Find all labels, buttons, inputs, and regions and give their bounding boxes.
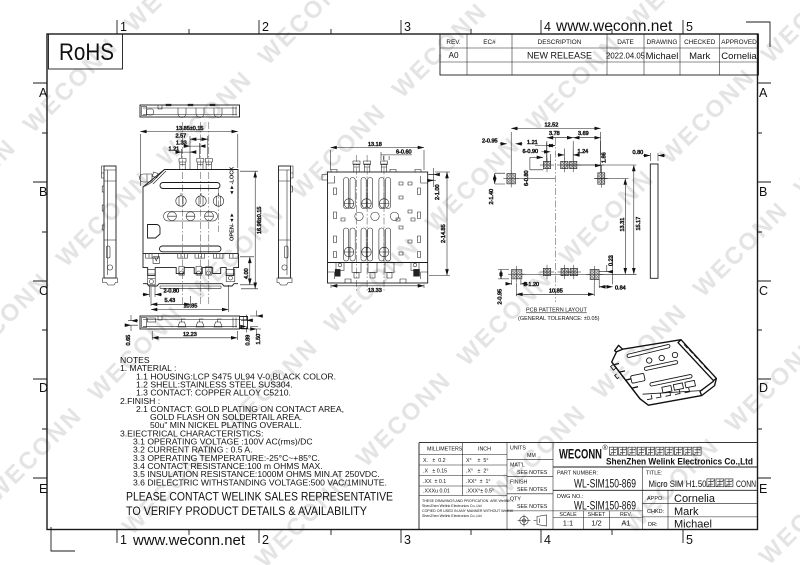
svg-text:A0: A0 xyxy=(448,51,458,60)
svg-text:NEW RELEASE: NEW RELEASE xyxy=(527,51,592,61)
svg-text:2-0.95: 2-0.95 xyxy=(482,139,498,145)
svg-text:WL-SIM150-869: WL-SIM150-869 xyxy=(574,499,636,513)
svg-text:REV.: REV. xyxy=(446,39,461,46)
svg-text:B: B xyxy=(759,185,767,199)
svg-text:2-1.20: 2-1.20 xyxy=(524,282,540,288)
svg-text:MILLIMETERS: MILLIMETERS xyxy=(427,447,463,453)
svg-text:DESCRIPTION: DESCRIPTION xyxy=(538,39,582,46)
svg-text:12.52: 12.52 xyxy=(545,123,559,129)
svg-text:15.17: 15.17 xyxy=(636,217,642,231)
svg-text:.XXX°± 0.5°: .XXX°± 0.5° xyxy=(466,489,494,495)
svg-text:13.31: 13.31 xyxy=(620,218,626,232)
svg-text:5: 5 xyxy=(686,20,693,34)
svg-text:0.23: 0.23 xyxy=(609,255,615,266)
svg-text:2: 2 xyxy=(262,20,269,34)
svg-text:DATE: DATE xyxy=(617,39,634,46)
svg-text:Mark: Mark xyxy=(674,506,699,518)
svg-text:Micro SIM H1.50: Micro SIM H1.50 xyxy=(649,479,707,489)
svg-text:DRAWING: DRAWING xyxy=(647,39,678,46)
svg-text:.XXXu 0.01: .XXXu 0.01 xyxy=(423,489,450,495)
svg-text:PCB PATTERN LAYOUT: PCB PATTERN LAYOUT xyxy=(526,308,587,314)
svg-text:COPIED OR USED IN ANY MANNER W: COPIED OR USED IN ANY MANNER WITHOUT Wel… xyxy=(422,509,514,513)
svg-text:2-1.00: 2-1.00 xyxy=(435,184,441,200)
svg-text:PLEASE CONTACT WELINK SALES RE: PLEASE CONTACT WELINK SALES REPRESENTATI… xyxy=(126,492,393,504)
svg-text:EC#: EC# xyxy=(483,39,496,46)
svg-text:DR:: DR: xyxy=(648,522,658,528)
svg-text:10.85: 10.85 xyxy=(549,289,563,295)
svg-text:1.33: 1.33 xyxy=(176,141,187,147)
svg-text:6-0.60: 6-0.60 xyxy=(396,150,412,156)
svg-text:.X ± 0.15: .X ± 0.15 xyxy=(423,468,447,474)
svg-text:16.96±0.15: 16.96±0.15 xyxy=(257,207,263,235)
svg-text:D: D xyxy=(759,381,768,395)
svg-text:REV.: REV. xyxy=(620,512,632,518)
svg-text:SEE NOTES: SEE NOTES xyxy=(517,470,548,476)
svg-text:FINISH: FINISH xyxy=(510,480,528,486)
svg-text:1:1: 1:1 xyxy=(563,519,573,528)
svg-text:.X° ± 2°: .X° ± 2° xyxy=(466,468,488,474)
svg-text:www.weconn.net: www.weconn.net xyxy=(555,18,673,35)
svg-text:ShenZhen Welink Electronics Co: ShenZhen Welink Electronics Co.,Ltd xyxy=(422,514,481,518)
svg-text:1.50: 1.50 xyxy=(256,334,262,345)
svg-text:2-14.85: 2-14.85 xyxy=(441,224,447,243)
svg-text:3.6 DIELECTRIC WITHSTANDING VO: 3.6 DIELECTRIC WITHSTANDING VOLTAGE:500 … xyxy=(133,477,387,487)
svg-text:2-1.40: 2-1.40 xyxy=(489,189,495,205)
svg-text:13.18: 13.18 xyxy=(368,142,382,148)
svg-text:®: ® xyxy=(603,444,609,452)
svg-text:B: B xyxy=(39,185,47,199)
svg-text:SEE NOTES: SEE NOTES xyxy=(517,487,548,493)
svg-text:0.80: 0.80 xyxy=(633,150,644,156)
svg-text:1.24: 1.24 xyxy=(578,149,589,155)
svg-text:QTY: QTY xyxy=(510,497,521,503)
svg-text:CONN: CONN xyxy=(736,479,756,489)
svg-text:A: A xyxy=(39,86,48,100)
svg-text:1.21: 1.21 xyxy=(527,140,538,146)
svg-text:RoHS: RoHS xyxy=(59,39,114,66)
svg-text:A: A xyxy=(759,86,768,100)
svg-text:D: D xyxy=(39,381,48,395)
svg-text:1/2: 1/2 xyxy=(591,519,601,528)
svg-text:APPROVED: APPROVED xyxy=(721,39,757,46)
svg-text:6-0.80: 6-0.80 xyxy=(524,170,530,186)
svg-text:X° ± 5°: X° ± 5° xyxy=(466,458,488,464)
svg-text:WECONN: WECONN xyxy=(559,447,602,462)
svg-text:4: 4 xyxy=(544,533,551,547)
svg-text:6-0.90: 6-0.90 xyxy=(523,149,539,155)
svg-text:UNITS: UNITS xyxy=(510,446,526,452)
svg-text:www.weconn.net: www.weconn.net xyxy=(132,533,245,549)
svg-text:◄►-LOCK: ◄►-LOCK xyxy=(230,167,236,196)
svg-text:1: 1 xyxy=(120,20,127,34)
svg-text:.XX ± 0.1: .XX ± 0.1 xyxy=(423,479,446,485)
svg-text:5.43: 5.43 xyxy=(165,298,176,304)
svg-text:2.57: 2.57 xyxy=(176,134,187,140)
svg-text:3.78: 3.78 xyxy=(549,131,560,137)
svg-text:OPEN-◄►: OPEN-◄► xyxy=(230,212,236,241)
svg-text:SEE NOTES: SEE NOTES xyxy=(517,504,548,510)
svg-text:4.00: 4.00 xyxy=(244,268,250,279)
svg-text:0.65: 0.65 xyxy=(126,335,132,346)
svg-text:APPO:: APPO: xyxy=(647,496,664,502)
svg-text:2022.04.05: 2022.04.05 xyxy=(606,52,646,61)
svg-text:3: 3 xyxy=(404,20,411,34)
svg-text:.XX° ± 1°: .XX° ± 1° xyxy=(466,479,491,485)
svg-text:MM: MM xyxy=(527,453,536,459)
svg-text:10.85: 10.85 xyxy=(184,304,198,310)
svg-text:C: C xyxy=(39,284,48,298)
svg-text:12.23: 12.23 xyxy=(183,332,197,338)
svg-text:5: 5 xyxy=(686,533,693,547)
svg-text:SHEET: SHEET xyxy=(588,512,606,518)
svg-text:E: E xyxy=(759,482,767,496)
svg-text:1.21: 1.21 xyxy=(169,147,180,153)
svg-text:(GENERAL TOLERANCE: ±0.05): (GENERAL TOLERANCE: ±0.05) xyxy=(518,316,600,322)
svg-text:ShenZhen Welink Electronics Co: ShenZhen Welink Electronics Co.,Ltd xyxy=(606,457,753,468)
svg-text:WL-SIM150-869: WL-SIM150-869 xyxy=(574,477,636,491)
svg-text:2-0.80: 2-0.80 xyxy=(164,289,180,295)
svg-text:X. ± 0.2: X. ± 0.2 xyxy=(423,458,446,464)
svg-text:13.33: 13.33 xyxy=(368,288,382,294)
svg-text:2-0.95: 2-0.95 xyxy=(498,289,504,305)
svg-text:Michael: Michael xyxy=(674,519,712,531)
svg-text:A1: A1 xyxy=(621,519,630,528)
svg-text:3: 3 xyxy=(404,533,411,547)
svg-text:CHECKED: CHECKED xyxy=(684,39,716,46)
svg-text:4: 4 xyxy=(544,20,551,34)
svg-text:C: C xyxy=(759,284,768,298)
svg-text:MAT'L: MAT'L xyxy=(510,463,525,469)
svg-text:ShenZhen Welink Electronics Co: ShenZhen Welink Electronics Co.,Ltd xyxy=(422,504,481,508)
svg-text:TO VERIFY PRODUCT DETAILS & AV: TO VERIFY PRODUCT DETAILS & AVAILABILITY xyxy=(126,506,367,518)
svg-text:0.84: 0.84 xyxy=(615,285,626,291)
svg-text:CHKD:: CHKD: xyxy=(647,509,665,515)
svg-text:13.85±0.15: 13.85±0.15 xyxy=(176,126,204,132)
svg-text:INCH: INCH xyxy=(478,447,491,453)
svg-text:Mark: Mark xyxy=(689,51,710,62)
svg-text:0.89: 0.89 xyxy=(246,335,252,346)
svg-text:3.69: 3.69 xyxy=(578,131,589,137)
svg-text:THESE DRAWINGS AND PROFICATION: THESE DRAWINGS AND PROFICATION ARE WelIN… xyxy=(422,499,511,503)
svg-text:TITLE:: TITLE: xyxy=(646,471,663,477)
svg-text:2: 2 xyxy=(262,533,269,547)
svg-text:Michael: Michael xyxy=(646,51,679,62)
svg-text:E: E xyxy=(39,482,47,496)
svg-text:SCALE: SCALE xyxy=(559,512,577,518)
svg-text:1: 1 xyxy=(120,533,127,547)
svg-text:Cornelia: Cornelia xyxy=(721,51,757,62)
svg-text:Cornelia: Cornelia xyxy=(674,493,716,505)
svg-text:1.86: 1.86 xyxy=(602,152,608,163)
